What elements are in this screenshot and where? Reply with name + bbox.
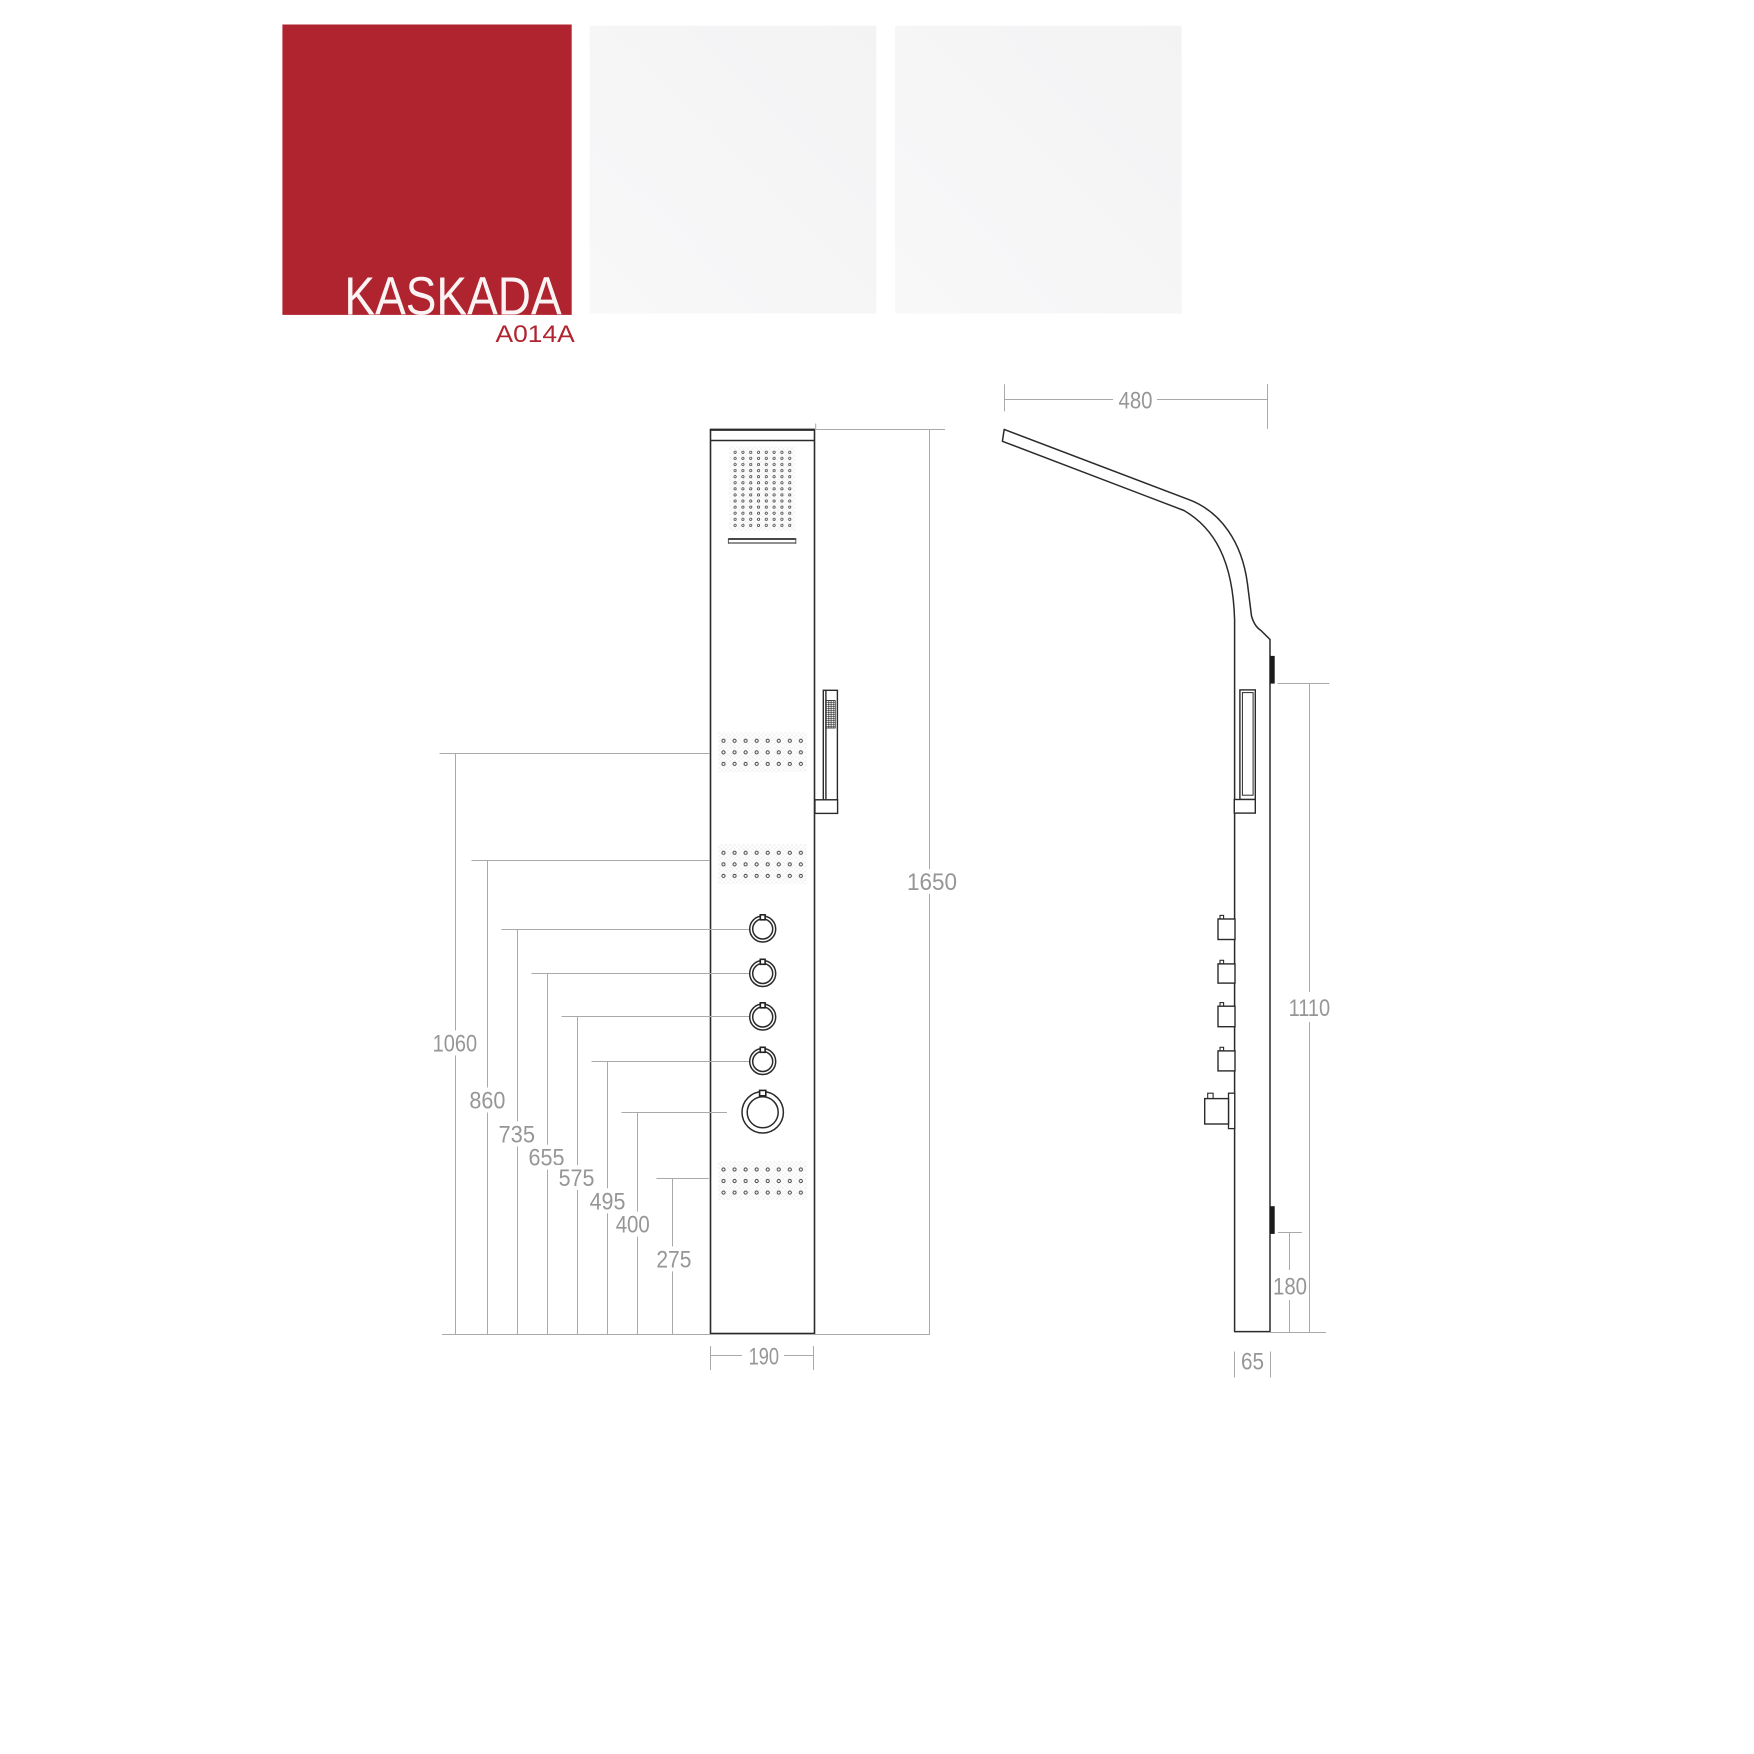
svg-text:1060: 1060 <box>433 1031 478 1058</box>
svg-text:180: 180 <box>1273 1274 1307 1301</box>
svg-text:275: 275 <box>656 1246 691 1273</box>
svg-text:1650: 1650 <box>907 869 957 896</box>
svg-text:400: 400 <box>616 1212 650 1239</box>
svg-text:480: 480 <box>1119 388 1153 415</box>
svg-text:860: 860 <box>469 1088 505 1115</box>
svg-text:A014A: A014A <box>496 321 575 348</box>
svg-text:KASKADA: KASKADA <box>344 267 561 327</box>
svg-text:190: 190 <box>749 1343 779 1370</box>
svg-text:65: 65 <box>1241 1348 1264 1375</box>
svg-text:1110: 1110 <box>1289 995 1331 1022</box>
